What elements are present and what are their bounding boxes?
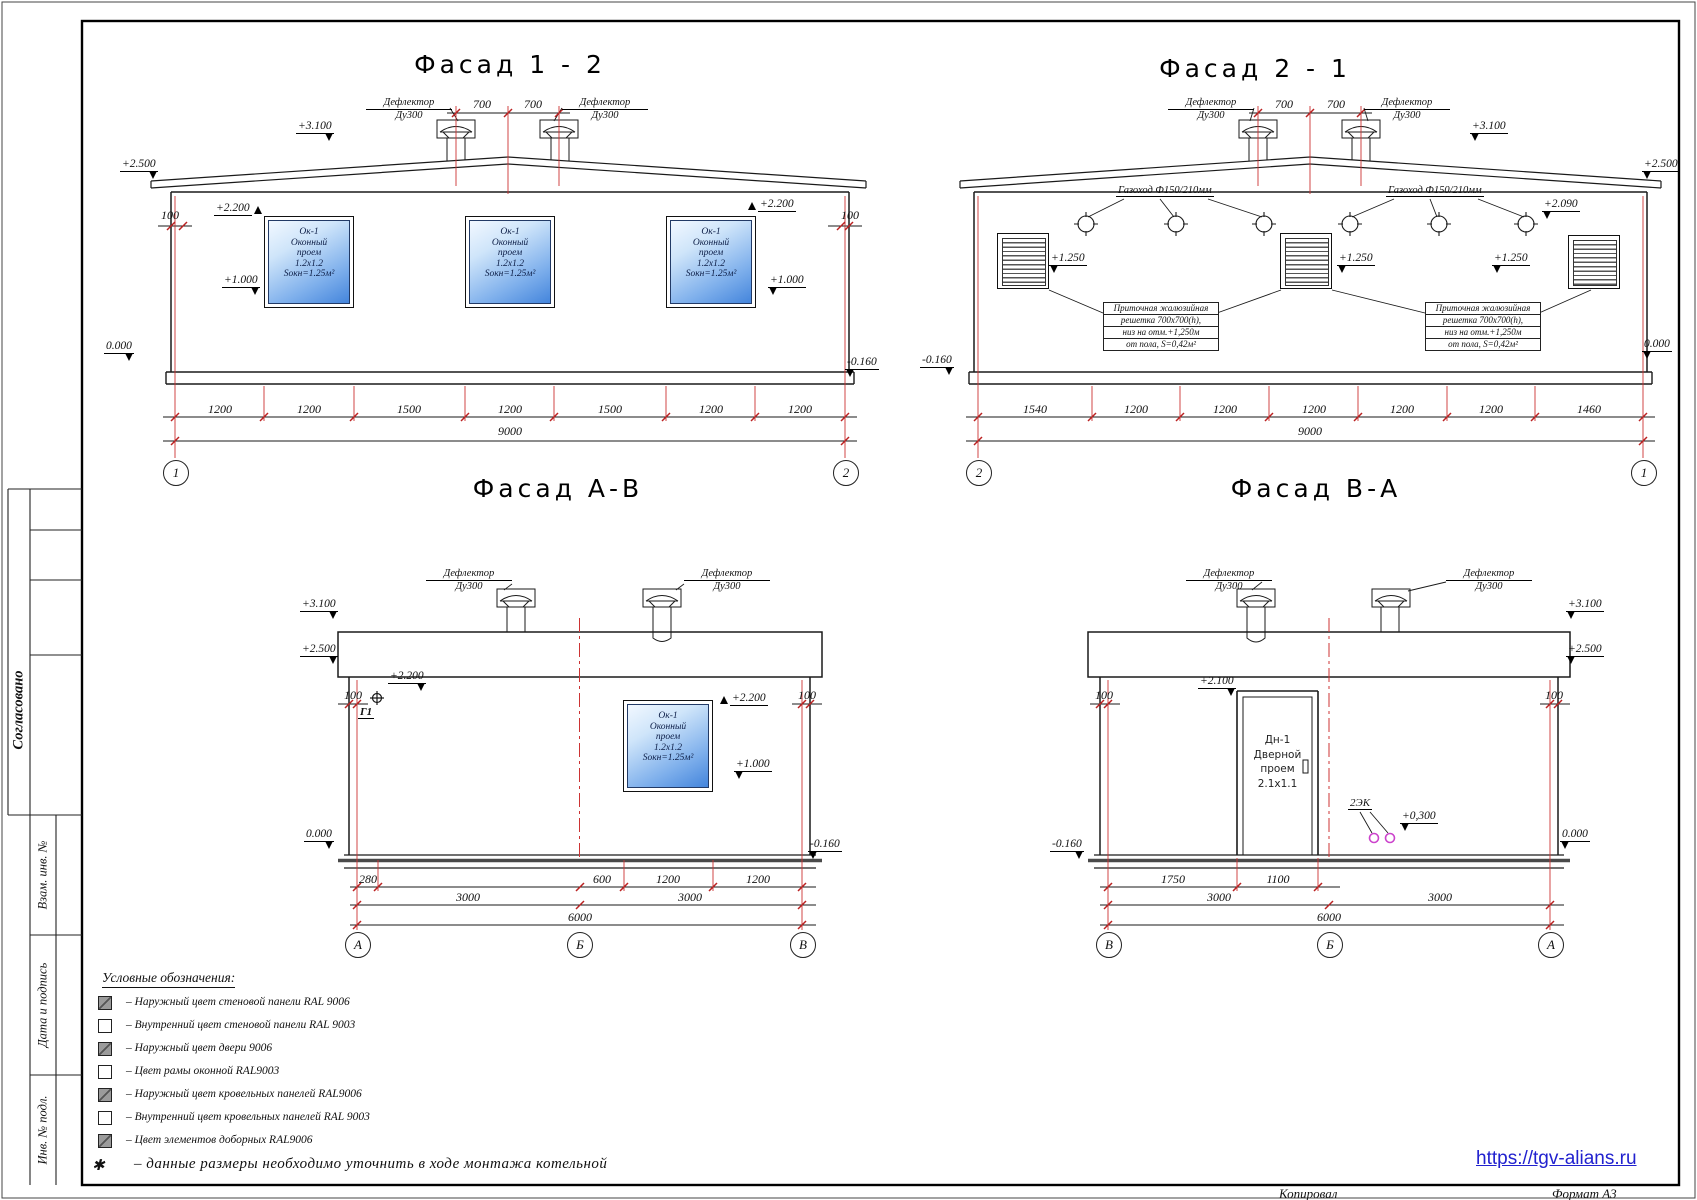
dim-label: 100: [161, 208, 179, 223]
axis-bubble: 1: [1631, 460, 1657, 486]
website-link[interactable]: https://tgv-alians.ru: [1476, 1148, 1637, 1170]
window: Ок-1Оконныйпроем1.2х1.2Sокн=1.25м²: [666, 216, 756, 308]
dim-label: 100: [344, 688, 362, 703]
axis-bubble: А: [1538, 932, 1564, 958]
window: Ок-1Оконныйпроем1.2х1.2Sокн=1.25м²: [465, 216, 555, 308]
elevation-mark: +1.000: [768, 274, 806, 288]
elevation-mark: +2.200: [758, 198, 796, 212]
louver-grille: [997, 233, 1049, 289]
dim-label: 100: [1545, 688, 1563, 703]
elevation-mark: +3.100: [1566, 598, 1604, 612]
dim-label: 1500: [397, 402, 421, 417]
legend-item: – Внутренний цвет кровельных панелей RAL…: [126, 1111, 370, 1123]
elevation-mark: 0.000: [1642, 338, 1672, 352]
dim-label: 1200: [297, 402, 321, 417]
titleblock-row: Взам. инв. №: [36, 841, 51, 910]
dim-label: 700: [524, 97, 542, 112]
deflector-label: ДефлекторДу300: [426, 568, 512, 592]
louver-grille: [1568, 235, 1620, 289]
axis-bubble: 2: [966, 460, 992, 486]
elevation-mark: +2.200: [214, 202, 252, 216]
axis-bubble: В: [1096, 932, 1122, 958]
dim-label: 1200: [1124, 402, 1148, 417]
elevation-mark: +2.500: [1566, 643, 1604, 657]
dim-total-label: 9000: [1298, 424, 1322, 439]
elevation-mark: +2.090: [1542, 198, 1580, 212]
cable-entry-circles: [1370, 834, 1395, 843]
dim-label: 3000: [456, 890, 480, 905]
elevation-mark: +3.100: [296, 120, 334, 134]
dim-label: 1200: [1213, 402, 1237, 417]
deflector-label: ДефлекторДу300: [1446, 568, 1532, 592]
footnote-text: – данные размеры необходимо уточнить в х…: [134, 1156, 607, 1173]
footnote-mark: ✱: [92, 1156, 105, 1175]
dim-label: 100: [841, 208, 859, 223]
legend-swatch: [98, 1019, 112, 1033]
footer-copied: Копировал: [1279, 1186, 1337, 1200]
dim-label: 700: [473, 97, 491, 112]
facade-AB-title: Фасад А-В: [473, 474, 643, 503]
legend-swatch: [98, 1111, 112, 1125]
dim-label: 100: [798, 688, 816, 703]
dim-total-label: 6000: [1317, 910, 1341, 925]
elevation-mark: +2.200: [730, 692, 768, 706]
dim-label: 600: [593, 872, 611, 887]
axis-bubble: А: [345, 932, 371, 958]
cable-entry-label: 2ЭК: [1348, 797, 1372, 810]
legend-swatch: [98, 1065, 112, 1079]
legend-item: – Цвет рамы оконной RAL9003: [126, 1065, 279, 1077]
elevation-mark: -0.160: [808, 838, 842, 852]
legend-title: Условные обозначения:: [102, 970, 235, 988]
facade-BA-title: Фасад В-А: [1231, 474, 1401, 503]
elevation-mark: +1.250: [1337, 252, 1375, 266]
deflector-label: ДефлекторДу300: [1186, 568, 1272, 592]
axis-bubble: Б: [1317, 932, 1343, 958]
titleblock-row: Дата и подпись: [36, 963, 51, 1048]
louver-grille: [1280, 233, 1332, 289]
elevation-mark: +3.100: [300, 598, 338, 612]
dim-label: 1750: [1161, 872, 1185, 887]
dim-label: 1460: [1577, 402, 1601, 417]
elevation-mark: +1.000: [734, 758, 772, 772]
deflector-label: ДефлекторДу300: [562, 97, 648, 121]
axis-bubble: В: [790, 932, 816, 958]
grille-callout: Приточная жалюзийнаярешетка 700х700(h),н…: [1425, 302, 1541, 351]
window: Ок-1Оконныйпроем1.2х1.2Sокн=1.25м²: [264, 216, 354, 308]
legend-item: – Наружный цвет стеновой панели RAL 9006: [126, 996, 350, 1008]
elevation-mark: +1.250: [1492, 252, 1530, 266]
gas-duct-label: Газоход Ф150/210мм: [1386, 185, 1484, 197]
dim-label: 1540: [1023, 402, 1047, 417]
elevation-mark: +2.100: [1198, 675, 1236, 689]
gas-entry-symbol: [370, 691, 384, 705]
facade-12-title: Фасад 1 - 2: [414, 50, 606, 79]
dim-label: 1200: [656, 872, 680, 887]
dim-label: 1200: [498, 402, 522, 417]
titleblock-approved: Согласовано: [11, 670, 28, 749]
dim-label: 100: [1095, 688, 1113, 703]
axis-bubble: Б: [567, 932, 593, 958]
elevation-mark: -0.160: [1050, 838, 1084, 852]
dim-total-label: 9000: [498, 424, 522, 439]
window: Ок-1Оконныйпроем1.2х1.2Sокн=1.25м²: [623, 700, 713, 792]
dim-label: 700: [1327, 97, 1345, 112]
gas-entry-label: Г1: [358, 706, 374, 719]
legend-swatch: [98, 1134, 112, 1148]
dim-label: 1200: [208, 402, 232, 417]
deflector-label: ДефлекторДу300: [1364, 97, 1450, 121]
elevation-mark: +3.100: [1470, 120, 1508, 134]
dim-label: 3000: [1428, 890, 1452, 905]
titleblock-lines: [8, 489, 82, 1185]
dim-total-label: 6000: [568, 910, 592, 925]
dim-label: 3000: [678, 890, 702, 905]
elevation-mark: -0.160: [845, 356, 879, 370]
gas-duct-label: Газоход Ф150/210мм: [1116, 185, 1214, 197]
dim-label: 1200: [746, 872, 770, 887]
elevation-mark: -0.160: [920, 354, 954, 368]
dim-label: 1200: [1390, 402, 1414, 417]
footer-format: Формат А3: [1552, 1186, 1617, 1200]
legend-item: – Наружный цвет кровельных панелей RAL90…: [126, 1088, 362, 1100]
deflector-label: ДефлекторДу300: [1168, 97, 1254, 121]
legend-item: – Внутренний цвет стеновой панели RAL 90…: [126, 1019, 355, 1031]
elevation-mark: 0.000: [104, 340, 134, 354]
dim-label: 1500: [598, 402, 622, 417]
dim-label: 1100: [1266, 872, 1289, 887]
elevation-mark: +2.200: [388, 670, 426, 684]
deflector-label: ДефлекторДу300: [366, 97, 452, 121]
dim-label: 3000: [1207, 890, 1231, 905]
dim-label: 700: [1275, 97, 1293, 112]
dim-label: 1200: [788, 402, 812, 417]
deflector-label: ДефлекторДу300: [684, 568, 770, 592]
legend-swatch: [98, 996, 112, 1010]
elevation-mark: 0.000: [1560, 828, 1590, 842]
elevation-mark: 0.000: [304, 828, 334, 842]
grille-callout: Приточная жалюзийнаярешетка 700х700(h),н…: [1103, 302, 1219, 351]
dim-label: 280: [359, 872, 377, 887]
elevation-mark: +1.000: [222, 274, 260, 288]
titleblock-row: Инв. № подл.: [36, 1095, 51, 1164]
facade-21-title: Фасад 2 - 1: [1159, 54, 1351, 83]
dim-label: 1200: [1479, 402, 1503, 417]
elevation-mark: +2.500: [300, 643, 338, 657]
elevation-mark: +0,300: [1400, 810, 1438, 824]
legend-item: – Цвет элементов доборных RAL9006: [126, 1134, 313, 1146]
door-label: Дн-1Двернойпроем2.1х1.1: [1243, 733, 1312, 791]
legend-item: – Наружный цвет двери 9006: [126, 1042, 272, 1054]
axis-bubble: 2: [833, 460, 859, 486]
drawing-sheet: Фасад 1 - 2 Фасад 2 - 1 Фасад А-В Фасад …: [0, 0, 1697, 1200]
axis-bubble: 1: [163, 460, 189, 486]
elevation-mark: +2.500: [1642, 158, 1680, 172]
elevation-mark: +2.500: [120, 158, 158, 172]
legend-swatch: [98, 1042, 112, 1056]
legend-swatch: [98, 1088, 112, 1102]
dim-label: 1200: [1302, 402, 1326, 417]
elevation-mark: +1.250: [1049, 252, 1087, 266]
dim-label: 1200: [699, 402, 723, 417]
